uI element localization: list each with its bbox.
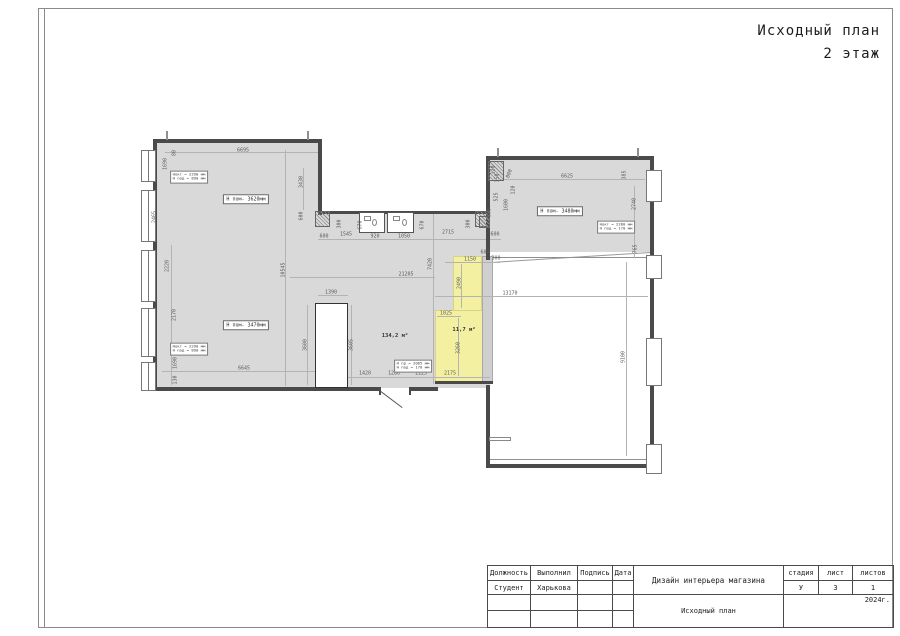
tb-header-stage: стадия — [784, 566, 819, 581]
dimension-label: 7420 — [429, 258, 434, 270]
window — [141, 308, 156, 357]
dimension-label: 120 — [512, 185, 517, 194]
tb-header-sheets: листов — [853, 566, 894, 581]
tb-signature-cell — [578, 581, 613, 595]
dimension-label: 525 — [495, 192, 500, 201]
room-fill-bottom-right — [490, 252, 652, 466]
room-height-label: Н пом- 3470мм — [223, 320, 269, 330]
tb-year: 2024г. — [784, 595, 894, 628]
hatched-column — [315, 211, 330, 227]
dimension-label: 10545 — [282, 262, 287, 277]
dimension-label: 3430 — [300, 176, 305, 188]
tb-doc-title: Исходный план — [634, 595, 784, 628]
room-divider-line — [486, 257, 654, 258]
dimension-label: 1025 — [440, 312, 452, 317]
dimension-label: 1150 — [464, 258, 476, 263]
dim-line — [437, 377, 490, 378]
hatched-column — [479, 216, 490, 228]
dimension-label: 1050 — [398, 235, 410, 240]
tb-empty-cell — [488, 611, 531, 628]
dimension-label: 2170 — [173, 309, 178, 321]
tb-sheets-value: 1 — [853, 581, 894, 595]
dimension-label: 600 — [488, 208, 493, 217]
dimension-label: 1600 — [505, 199, 510, 211]
dim-line — [433, 213, 434, 384]
dimension-label: 670 — [359, 220, 364, 229]
dimension-label: 670 — [421, 220, 426, 229]
dim-line — [435, 296, 648, 297]
tb-header-position: Должность — [488, 566, 531, 581]
dimension-label: 6695 — [237, 149, 249, 154]
dimension-label: 600 — [480, 251, 489, 256]
tb-empty-cell — [531, 595, 578, 611]
opening-note-label: Нокт = 2290 ммН под = 890 мм — [170, 343, 208, 356]
shaft — [315, 303, 348, 388]
wall-segment — [486, 464, 658, 468]
wall-stub — [637, 148, 639, 157]
tb-empty-cell — [531, 611, 578, 628]
dimension-label: 2465 — [153, 211, 158, 223]
dimension-label: 300 — [491, 257, 500, 262]
wall-stub — [497, 148, 499, 157]
shelf — [489, 437, 511, 441]
dimension-label: 3600 — [304, 339, 309, 351]
dimension-label: 1420 — [359, 372, 371, 377]
dimension-label: 1690 — [174, 357, 179, 369]
wall-stub — [307, 131, 309, 140]
dimension-label: 13170 — [502, 292, 517, 297]
dimension-label: 6645 — [238, 367, 250, 372]
dimension-label: 1390 — [325, 291, 337, 296]
dimension-label: 920 — [370, 235, 379, 240]
tb-header-made-by: Выполнил — [531, 566, 578, 581]
pilaster — [646, 255, 662, 279]
tb-date-cell — [613, 581, 634, 595]
dimension-label: 300 — [467, 219, 472, 228]
dimension-label: 2715 — [442, 231, 454, 236]
opening-note-label: Нокт = 2280 ммН под = 170 мм — [597, 221, 635, 234]
dimension-label: 150 — [496, 173, 501, 182]
dimension-label: 80 — [173, 150, 178, 156]
room-height-label: Н пом- 3480мм — [537, 206, 583, 216]
dimension-label: 2175 — [444, 372, 456, 377]
tb-position-value: Студент — [488, 581, 531, 595]
tb-project-name: Дизайн интерьера магазина — [634, 566, 784, 595]
dimension-label: 600 — [319, 235, 328, 240]
door-jamb — [409, 387, 411, 395]
dimension-label: 21205 — [398, 273, 413, 278]
wc-cubicle — [387, 212, 414, 233]
dimension-label: 600 — [300, 211, 305, 220]
tb-empty-cell — [488, 595, 531, 611]
dimension-label: 130 — [174, 375, 179, 384]
window — [141, 150, 156, 182]
tb-sheet-value: 3 — [819, 581, 853, 595]
tb-empty-cell — [578, 611, 613, 628]
tb-empty-cell — [578, 595, 613, 611]
tb-empty-cell — [613, 611, 634, 628]
pilaster — [646, 170, 662, 202]
room-area-label: 134,2 м² — [382, 333, 409, 339]
tb-header-date: Дата — [613, 566, 634, 581]
tb-header-sheet: лист — [819, 566, 853, 581]
tb-stage-value: У — [784, 581, 819, 595]
title-block: Должность Выполнил Подпись Дата Дизайн и… — [487, 565, 894, 628]
dimension-label: 6625 — [561, 175, 573, 180]
dimension-label: 300 — [338, 219, 343, 228]
dimension-label: 3605 — [350, 339, 355, 351]
door-leaf — [380, 391, 402, 408]
dimension-label: 2490 — [458, 277, 463, 289]
floor-plan: 6695801690246534306002220217016901306001… — [0, 0, 900, 636]
tb-header-signature: Подпись — [578, 566, 613, 581]
dimension-label: 600 — [490, 233, 499, 238]
toilet-bowl-icon — [402, 219, 407, 226]
dim-line — [347, 377, 437, 378]
window — [141, 362, 156, 391]
dimension-label: 385 — [623, 170, 628, 179]
dim-line — [303, 168, 304, 210]
tb-empty-cell — [613, 595, 634, 611]
opening-note-label: Н пр = 2065 ммН под = 170 мм — [394, 360, 432, 373]
dimension-label: 2220 — [166, 260, 171, 272]
window — [141, 250, 156, 302]
dimension-label: 9100 — [622, 351, 627, 363]
wall-inner-line — [490, 459, 654, 460]
room-area-label: 11,7 м² — [452, 327, 475, 333]
toilet-bowl-icon — [372, 219, 377, 226]
dimension-label: 2740 — [633, 198, 638, 210]
wall-segment — [650, 156, 654, 472]
wall-band — [482, 256, 493, 384]
wall-segment — [486, 385, 490, 468]
wall-segment — [410, 387, 438, 391]
dimension-label: 3260 — [457, 342, 462, 354]
toilet-icon — [393, 216, 400, 221]
wall-segment — [318, 139, 322, 215]
opening-note-label: Нокт = 2290 ммН под = 890 мм — [170, 171, 208, 184]
dimension-label: 1545 — [340, 233, 352, 238]
room-height-label: Н пом- 3620мм — [223, 194, 269, 204]
wall-stub — [166, 131, 168, 140]
drawing-sheet: Исходный план 2 этаж — [0, 0, 900, 636]
wall-segment — [435, 381, 493, 384]
dimension-label: 1690 — [164, 158, 169, 170]
pilaster — [646, 444, 662, 474]
tb-made-by-value: Харькова — [531, 581, 578, 595]
dimension-label: 765 — [634, 244, 639, 253]
wall-segment — [156, 139, 322, 143]
toilet-icon — [364, 216, 371, 221]
wall-segment — [486, 156, 654, 160]
pilaster — [646, 338, 662, 386]
